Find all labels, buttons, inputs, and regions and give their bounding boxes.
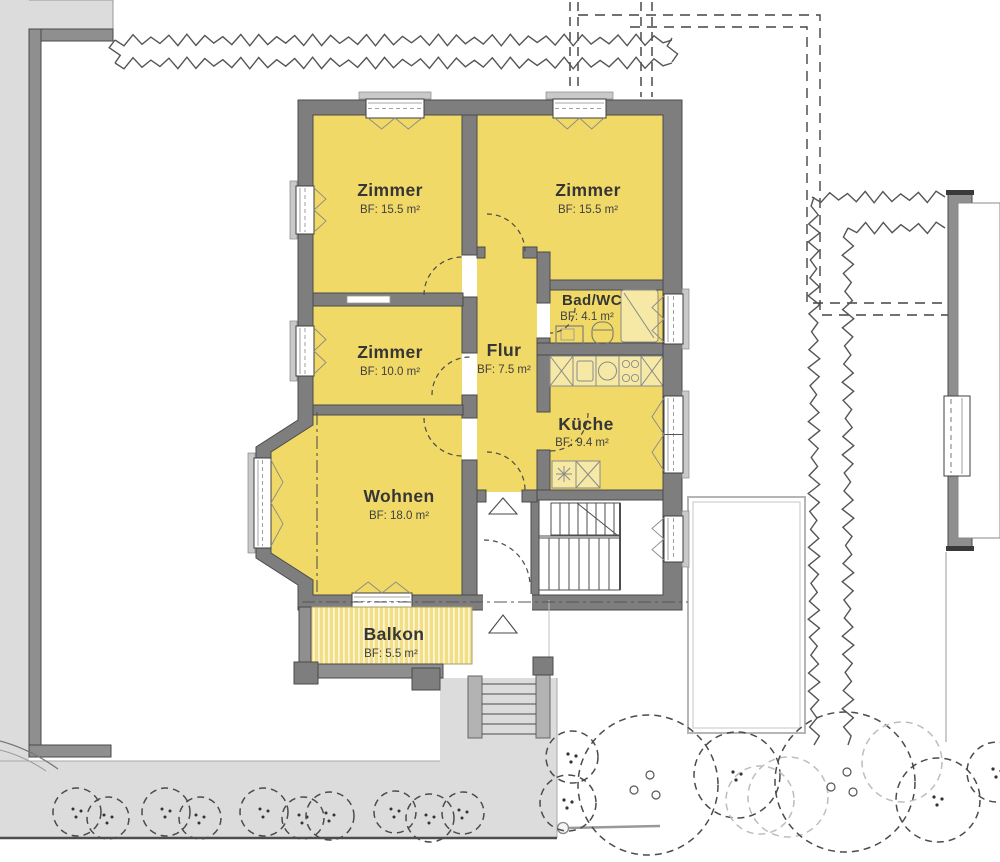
- bush-dot: [458, 809, 461, 812]
- room-label-flur: Flur: [487, 340, 522, 360]
- balcony-pillar: [294, 662, 318, 684]
- bush-dot: [398, 810, 401, 813]
- tree-trunk-mark: [935, 803, 938, 806]
- street: [0, 761, 557, 838]
- wall-niche: [347, 296, 390, 303]
- bush-dot: [80, 810, 83, 813]
- bush-dot: [425, 814, 428, 817]
- bush-dot: [333, 814, 336, 817]
- tree-trunk-mark: [570, 800, 573, 803]
- tree-trunk-mark: [994, 775, 997, 778]
- kitchen-counter: [550, 356, 663, 386]
- bush-dot: [106, 822, 109, 825]
- room-area-zimmer-top-left: BF: 15.5 m²: [360, 204, 420, 216]
- room-label-zimmer-mid-left: Zimmer: [357, 342, 423, 362]
- neighbor-left-wall-bottom: [29, 745, 111, 757]
- bush-dot: [298, 814, 301, 817]
- neighbor-left-wall: [29, 29, 41, 757]
- bush-dot: [428, 822, 431, 825]
- bush-dot: [72, 808, 75, 811]
- room-label-zimmer-top-right: Zimmer: [555, 180, 621, 200]
- floor-plan-page: Zimmer BF: 15.5 m² Zimmer BF: 15.5 m² Ba…: [0, 0, 1000, 862]
- bush-dot: [267, 810, 270, 813]
- floor-plan-canvas: Zimmer BF: 15.5 m² Zimmer BF: 15.5 m² Ba…: [0, 0, 1000, 862]
- bush-dot: [103, 814, 106, 817]
- bush-dot: [328, 820, 331, 823]
- bush-dot: [325, 812, 328, 815]
- tree-trunk-mark: [565, 806, 568, 809]
- room-area-kueche: BF: 9.4 m²: [555, 437, 609, 449]
- room-label-kueche: Küche: [558, 414, 613, 434]
- terrace-rectangle: [688, 497, 805, 733]
- bush-dot: [75, 816, 78, 819]
- room-label-bad-wc: Bad/WC: [562, 292, 622, 309]
- room-label-balkon: Balkon: [364, 624, 425, 644]
- tree-trunk-mark: [562, 798, 565, 801]
- tree-trunk-mark: [940, 797, 943, 800]
- bush-dot: [203, 816, 206, 819]
- room-label-zimmer-top-left: Zimmer: [357, 180, 423, 200]
- bush-dot: [433, 816, 436, 819]
- bush-dot: [390, 808, 393, 811]
- fridge-star: [556, 466, 572, 482]
- neighbor-left-strip: [0, 0, 29, 761]
- room-area-zimmer-mid-left: BF: 10.0 m²: [360, 366, 420, 378]
- balcony-pillar: [412, 668, 440, 690]
- stairwell: [539, 500, 663, 595]
- tree-trunk-mark: [991, 767, 994, 770]
- stair-sidewall-left: [468, 676, 482, 738]
- neighbor-right-window: [944, 396, 970, 476]
- tree-trunk-mark: [734, 778, 737, 781]
- bush-dot: [164, 816, 167, 819]
- bush-dot: [393, 816, 396, 819]
- bush-dot: [111, 816, 114, 819]
- bush-dot: [301, 822, 304, 825]
- tree-trunk-mark: [569, 760, 572, 763]
- bush-dot: [461, 817, 464, 820]
- bush-dot: [262, 816, 265, 819]
- room-label-wohnen: Wohnen: [363, 486, 434, 506]
- bush-dot: [198, 822, 201, 825]
- room-area-zimmer-top-right: BF: 15.5 m²: [558, 204, 618, 216]
- room-area-wohnen: BF: 18.0 m²: [369, 510, 429, 522]
- room-area-bad-wc: BF: 4.1 m²: [560, 311, 614, 323]
- bush-dot: [169, 810, 172, 813]
- bush-dot: [466, 811, 469, 814]
- bush-dot: [259, 808, 262, 811]
- survey-point: [558, 823, 569, 834]
- tree-trunk-mark: [574, 754, 577, 757]
- bush-dot: [161, 808, 164, 811]
- room-area-flur: BF: 7.5 m²: [477, 364, 531, 376]
- tree-trunk-mark: [731, 770, 734, 773]
- bush-dot: [195, 814, 198, 817]
- tree-trunk-mark: [932, 795, 935, 798]
- stair-pillar: [533, 657, 553, 675]
- room-area-balkon: BF: 5.5 m²: [364, 648, 418, 660]
- tree-trunk-mark: [566, 752, 569, 755]
- neighbor-left-wall-top: [29, 29, 113, 41]
